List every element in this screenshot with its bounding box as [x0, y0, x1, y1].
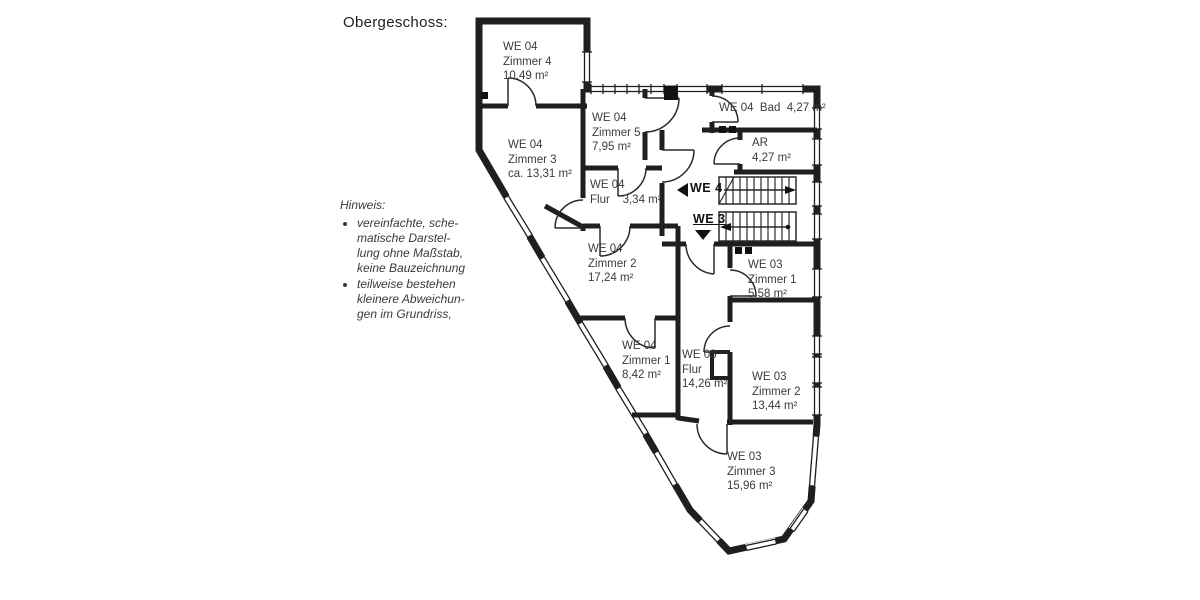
floorplan-page: Obergeschoss: Hinweis: vereinfachte, sch…: [0, 0, 1200, 600]
room-label-we03-zimmer2: WE 03 Zimmer 2 13,44 m²: [752, 370, 801, 414]
window: [812, 387, 822, 415]
window: [722, 84, 803, 94]
room-label-we04-zimmer1: WE 04 Zimmer 1 8,42 m²: [622, 339, 671, 383]
we3-marker: WE 3: [693, 212, 726, 226]
we4-marker: WE 4: [690, 181, 723, 195]
door-symbol: [481, 92, 488, 99]
room-label-we04-bad: WE 04 Bad 4,27 m²: [719, 101, 826, 116]
room-label-we04-zimmer4: WE 04 Zimmer 4 10.49 m²: [503, 40, 552, 84]
room-label-we03-zimmer3: WE 03 Zimmer 3 15,96 m²: [727, 450, 776, 494]
door-symbol: [735, 247, 742, 254]
window: [812, 182, 822, 206]
disclaimer-note: Hinweis: vereinfachte, sche- matische Da…: [340, 198, 475, 323]
note-heading: Hinweis:: [340, 198, 475, 213]
window: [812, 357, 822, 383]
door-symbol: [745, 247, 752, 254]
wall-pier: [664, 86, 678, 100]
room-label-we04-zimmer2: WE 04 Zimmer 2 17,24 m²: [588, 242, 637, 286]
page-title: Obergeschoss:: [343, 14, 448, 31]
window: [812, 214, 822, 239]
room-label-we04-flur: WE 04 Flur 3,34 m²: [590, 178, 662, 207]
window: [812, 269, 822, 297]
window: [582, 52, 592, 82]
room-label-we03-zimmer1: WE 03 Zimmer 1 5,58 m²: [748, 258, 797, 302]
door-symbol: [729, 126, 736, 133]
floorplan-drawing: [0, 0, 1200, 600]
room-label-we04-zimmer3: WE 04 Zimmer 3 ca. 13,31 m²: [508, 138, 572, 182]
room-label-we03-flur: WE 03 Flur 14,26 m²: [682, 348, 727, 392]
room-label-abstellraum: AR 4,27 m²: [752, 136, 791, 165]
window: [812, 336, 822, 354]
window: [812, 139, 822, 165]
room-label-we04-zimmer5: WE 04 Zimmer 5 7,95 m²: [592, 111, 641, 155]
window: [591, 84, 664, 94]
note-list: vereinfachte, sche- matische Darstel- lu…: [340, 216, 475, 322]
window: [677, 84, 707, 94]
note-bullet: vereinfachte, sche- matische Darstel- lu…: [357, 216, 475, 276]
note-bullet: teilweise bestehen kleinere Abweichun- g…: [357, 277, 475, 322]
door-symbol: [719, 126, 726, 133]
